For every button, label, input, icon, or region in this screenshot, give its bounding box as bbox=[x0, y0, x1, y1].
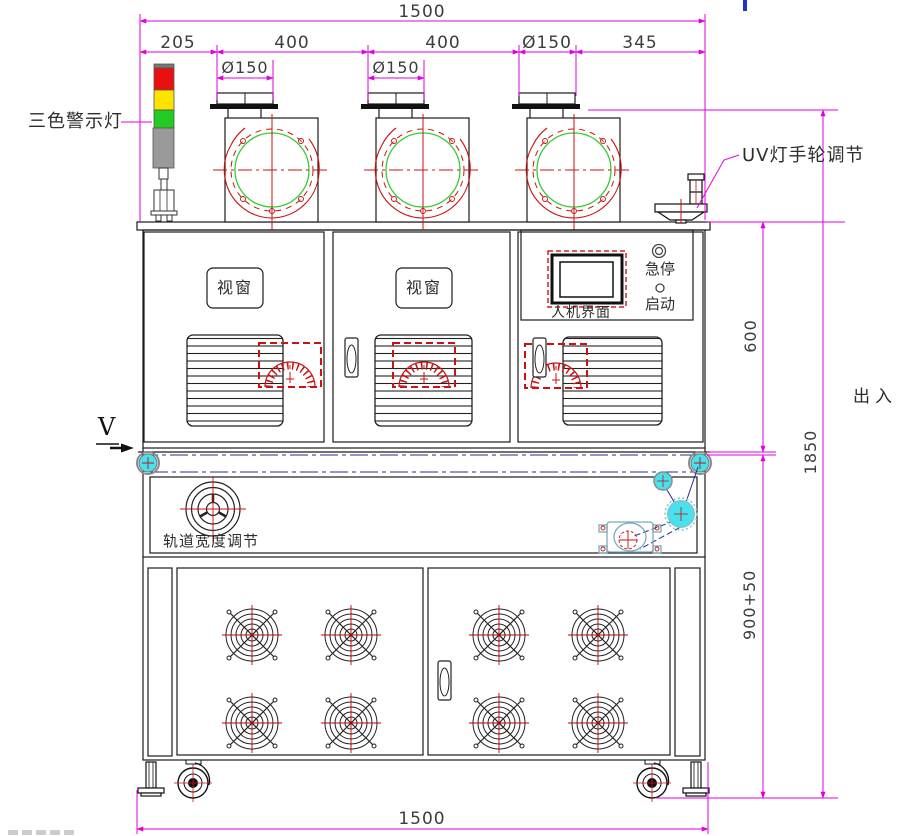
door-handle-upper-3[interactable] bbox=[533, 338, 546, 377]
uv-handwheel[interactable] bbox=[655, 174, 707, 223]
blower-2 bbox=[361, 93, 481, 230]
dim-label-205: 205 bbox=[148, 34, 208, 53]
dim-label-345: 345 bbox=[610, 34, 670, 53]
drive-assembly bbox=[599, 467, 698, 553]
dim-label-d150-blower1: Ø150 bbox=[215, 59, 275, 77]
track-width-label: 轨道宽度调节 bbox=[163, 533, 259, 550]
cooling-fans bbox=[222, 605, 628, 753]
blower-1 bbox=[210, 93, 330, 230]
dim-label-400b: 400 bbox=[413, 34, 473, 53]
view-arrow bbox=[96, 444, 134, 453]
hmi-screen[interactable] bbox=[560, 262, 613, 297]
clipped-text-artifact bbox=[8, 830, 74, 835]
lower-right-panel bbox=[675, 568, 700, 756]
tower-yellow-light bbox=[154, 90, 174, 110]
dim-label-d150-top: Ø150 bbox=[517, 34, 577, 53]
dim-label-top-1500: 1500 bbox=[392, 3, 452, 22]
leader-uv-handwheel bbox=[697, 155, 739, 208]
start-label: 启动 bbox=[640, 296, 680, 313]
viewport-label-1: 视窗 bbox=[207, 279, 263, 297]
louver-3 bbox=[563, 337, 662, 425]
machine-body bbox=[137, 222, 710, 760]
machine-linework bbox=[0, 0, 901, 836]
tower-green-light bbox=[154, 110, 174, 128]
warning-light-label: 三色警示灯 bbox=[28, 112, 123, 132]
dim-label-bottom-1500: 1500 bbox=[392, 810, 452, 829]
door-handle-upper-2[interactable] bbox=[345, 338, 358, 377]
viewport-label-2: 视窗 bbox=[396, 279, 452, 297]
tower-base-body bbox=[153, 128, 174, 168]
dim-label-400a: 400 bbox=[262, 34, 322, 53]
conveyor bbox=[137, 452, 711, 474]
cad-drawing: 1500 205 400 400 Ø150 345 Ø150 Ø150 600 … bbox=[0, 0, 901, 836]
estop-label: 急停 bbox=[640, 261, 680, 278]
lower-door-left bbox=[177, 568, 423, 755]
dim-label-1850: 1850 bbox=[802, 422, 822, 482]
start-button[interactable] bbox=[656, 284, 664, 292]
door-handle-lower[interactable] bbox=[438, 661, 451, 700]
warning-light-tower bbox=[151, 64, 177, 221]
pulley-left bbox=[137, 452, 159, 474]
caster-right bbox=[633, 760, 671, 802]
dim-label-d150-blower2: Ø150 bbox=[366, 59, 426, 77]
caster-left bbox=[174, 760, 212, 802]
estop-button-inner bbox=[656, 248, 663, 255]
lower-door-right bbox=[428, 568, 670, 755]
hmi-label: 人机界面 bbox=[551, 306, 611, 321]
tower-red-light bbox=[154, 68, 174, 90]
leveling-foot-left bbox=[138, 762, 164, 796]
uv-handwheel-label: UV灯手轮调节 bbox=[742, 146, 865, 166]
lower-left-panel bbox=[148, 568, 172, 756]
blower-3 bbox=[512, 93, 632, 230]
dim-label-900-50: 900+50 bbox=[741, 570, 761, 640]
in-out-label: 出入 bbox=[853, 388, 897, 407]
tower-cap bbox=[154, 64, 174, 68]
blue-mark-artifact bbox=[743, 0, 747, 11]
dim-label-600: 600 bbox=[742, 306, 762, 366]
view-direction-label: V bbox=[98, 414, 115, 440]
leveling-foot-right bbox=[683, 762, 709, 796]
estop-button[interactable] bbox=[653, 245, 666, 258]
